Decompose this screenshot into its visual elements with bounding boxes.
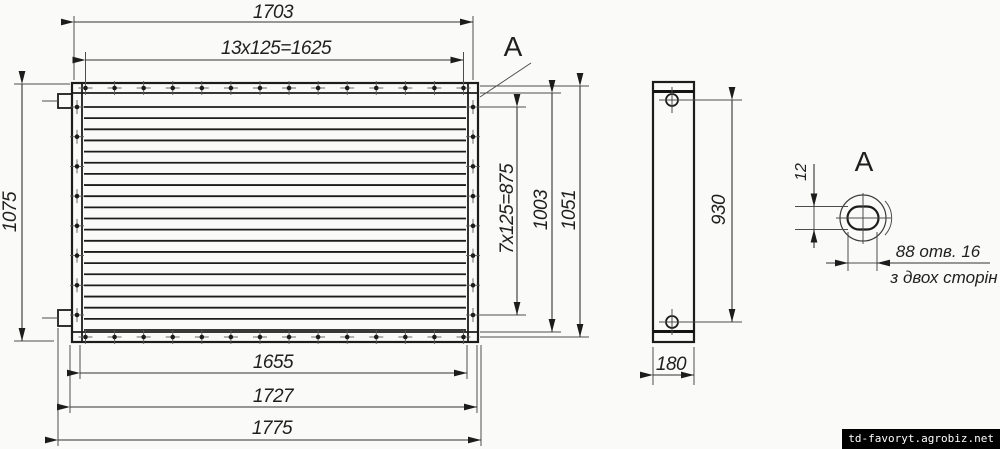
bolt-hole (471, 253, 476, 258)
bolt-hole (345, 335, 350, 340)
dim-top-bolt-pitch-label: 13x125=1625 (221, 38, 332, 59)
left-bottom-lug (58, 310, 72, 326)
holes-note-line2: з двох сторін (889, 268, 998, 287)
bolt-hole (112, 335, 117, 340)
front-view (42, 81, 480, 344)
bolt-hole (287, 335, 292, 340)
bolt-hole (112, 86, 117, 91)
bolt-hole (471, 164, 476, 169)
bolt-holes (70, 81, 480, 344)
bolt-hole (83, 335, 88, 340)
heater-drawing: 1703 13x125=1625 1075 7x125=875 1003 105… (0, 0, 1000, 449)
dim-side-hole-pitch-label: 930 (709, 194, 730, 225)
bolt-hole (403, 335, 408, 340)
dim-side-depth-label: 180 (656, 354, 687, 375)
dim-right-opening-label: 1003 (531, 189, 552, 230)
bolt-hole (316, 335, 321, 340)
bolt-hole (374, 86, 379, 91)
bolt-hole (316, 86, 321, 91)
side-outline (653, 82, 694, 342)
bolt-hole (75, 105, 80, 110)
bolt-hole (75, 164, 80, 169)
dim-bottom-frame-label: 1727 (253, 386, 295, 407)
bolt-hole (374, 335, 379, 340)
bolt-hole (170, 86, 175, 91)
frame-outline (72, 83, 478, 342)
dim-left-height-label: 1075 (0, 191, 21, 232)
bolt-hole (345, 86, 350, 91)
bolt-hole (471, 105, 476, 110)
bolt-hole (229, 335, 234, 340)
bolt-hole (403, 86, 408, 91)
bolt-hole (83, 86, 88, 91)
bolt-hole (461, 86, 466, 91)
bolt-hole (75, 313, 80, 318)
watermark-label: td-favoryt.agrobiz.net (842, 429, 1000, 449)
dim-slot-height-label: 12 (793, 163, 810, 181)
detail-a-title: A (855, 146, 874, 177)
bolt-hole (471, 134, 476, 139)
bolt-hole (461, 335, 466, 340)
bolt-hole (200, 86, 205, 91)
bolt-hole (471, 313, 476, 318)
technical-drawing-sheet: 1703 13x125=1625 1075 7x125=875 1003 105… (0, 0, 1000, 449)
section-a-leader (480, 63, 531, 97)
dim-bottom-overall-label: 1775 (252, 418, 293, 439)
bolt-hole (75, 134, 80, 139)
holes-note-line1: 88 отв. 16 (896, 242, 981, 261)
bolt-hole (200, 335, 205, 340)
side-view (653, 82, 742, 385)
bolt-hole (258, 86, 263, 91)
bolt-hole (471, 194, 476, 199)
section-a-label: A (504, 31, 523, 62)
bolt-hole (287, 86, 292, 91)
bolt-hole (75, 253, 80, 258)
bolt-hole (141, 86, 146, 91)
bolt-hole (432, 86, 437, 91)
bolt-hole (229, 86, 234, 91)
dim-top-overall-label: 1703 (253, 2, 294, 23)
dim-right-frame-label: 1051 (559, 190, 580, 230)
bolt-hole (170, 335, 175, 340)
dim-bottom-opening-label: 1655 (253, 352, 294, 373)
fin-tube-rows (84, 107, 466, 330)
bolt-hole (141, 335, 146, 340)
dim-right-bolt-pitch-label: 7x125=875 (497, 163, 518, 254)
bolt-hole (471, 224, 476, 229)
bolt-hole (75, 224, 80, 229)
bolt-hole (432, 335, 437, 340)
bolt-hole (75, 283, 80, 288)
bolt-hole (75, 194, 80, 199)
bolt-hole (471, 283, 476, 288)
left-top-lug (58, 94, 72, 108)
bolt-hole (258, 335, 263, 340)
